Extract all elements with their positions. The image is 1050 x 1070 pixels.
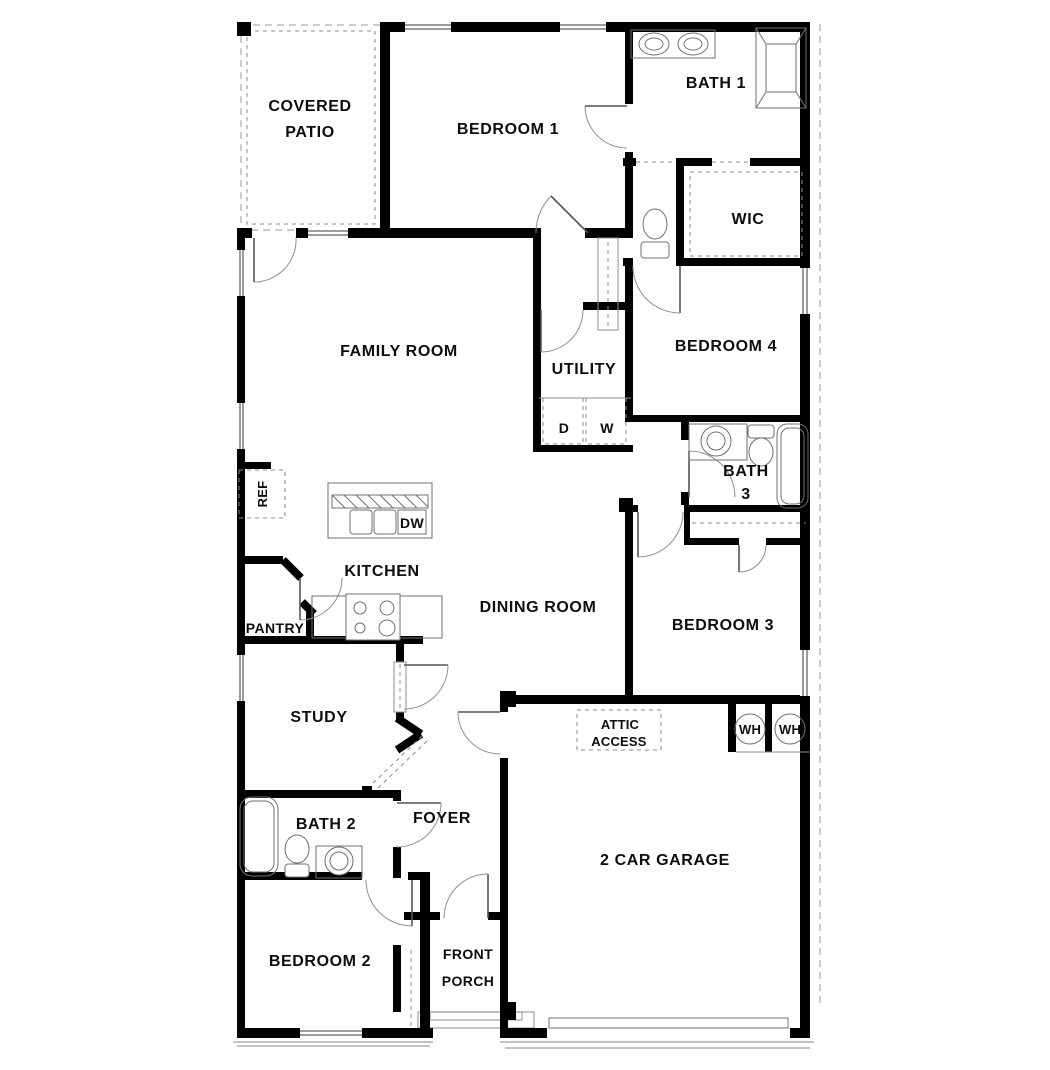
garage-door-to-foyer bbox=[458, 712, 500, 754]
room-label-utility: UTILITY bbox=[552, 361, 617, 378]
room-label-covered-patio-line1: COVERED bbox=[268, 98, 351, 115]
patio-door bbox=[254, 238, 296, 282]
window-bedroom1-top-right bbox=[560, 22, 606, 32]
room-label-bedroom1: BEDROOM 1 bbox=[457, 121, 559, 138]
study-cased-opening bbox=[394, 662, 406, 712]
label-water-heater-1: WH bbox=[739, 722, 761, 737]
bedroom3-door bbox=[638, 512, 683, 557]
room-label-garage: 2 CAR GARAGE bbox=[600, 852, 730, 869]
room-label-foyer: FOYER bbox=[413, 810, 471, 827]
room-label-bath3-line1: BATH bbox=[723, 463, 769, 480]
bath3-toilet-icon bbox=[748, 425, 774, 466]
garage-overhead-door bbox=[549, 1018, 788, 1028]
label-washer: W bbox=[600, 420, 614, 436]
bath1-shower bbox=[756, 28, 806, 108]
room-label-bath1: BATH 1 bbox=[686, 75, 746, 92]
room-labels: COVERED PATIO BEDROOM 1 BATH 1 WIC FAMIL… bbox=[246, 75, 777, 989]
room-label-pantry: PANTRY bbox=[246, 620, 305, 636]
window-study-left bbox=[237, 655, 245, 701]
room-label-dining: DINING ROOM bbox=[480, 599, 597, 616]
appliance-labels: REF DW D W WH WH bbox=[255, 420, 801, 737]
windows bbox=[237, 22, 810, 1038]
bath1-vanity bbox=[631, 30, 715, 58]
label-dishwasher: DW bbox=[400, 515, 425, 531]
room-label-family-room: FAMILY ROOM bbox=[340, 343, 458, 360]
room-label-bedroom2: BEDROOM 2 bbox=[269, 953, 371, 970]
window-bedroom2-bottom bbox=[300, 1028, 362, 1038]
room-label-bedroom3: BEDROOM 3 bbox=[672, 617, 774, 634]
front-entry-door bbox=[444, 874, 488, 918]
label-refrigerator: REF bbox=[255, 481, 270, 508]
walls-layer bbox=[237, 22, 810, 1038]
bedroom1-door bbox=[536, 196, 588, 233]
room-label-bath2: BATH 2 bbox=[296, 816, 356, 833]
window-family-room-top bbox=[308, 228, 348, 238]
window-bedroom1-top-left bbox=[405, 22, 451, 32]
bath3-vanity bbox=[689, 424, 747, 460]
label-attic-access-line1: ATTIC bbox=[601, 717, 640, 732]
room-label-covered-patio-line2: PATIO bbox=[285, 124, 335, 141]
kitchen-counter bbox=[312, 594, 442, 640]
window-family-room-left-2 bbox=[237, 403, 245, 449]
room-label-study: STUDY bbox=[290, 709, 347, 726]
floor-plan-svg: COVERED PATIO BEDROOM 1 BATH 1 WIC FAMIL… bbox=[0, 0, 1050, 1070]
label-dryer: D bbox=[559, 420, 570, 436]
floor-plan-canvas: COVERED PATIO BEDROOM 1 BATH 1 WIC FAMIL… bbox=[0, 0, 1050, 1070]
room-label-front-porch-line1: FRONT bbox=[443, 946, 493, 962]
room-label-kitchen: KITCHEN bbox=[344, 563, 419, 580]
bath1-door bbox=[585, 106, 627, 148]
room-label-bath3-line2: 3 bbox=[741, 486, 751, 503]
study-door bbox=[404, 665, 448, 709]
room-label-bedroom4: BEDROOM 4 bbox=[675, 338, 777, 355]
bath1-toilet-icon bbox=[641, 209, 669, 258]
room-label-front-porch-line2: PORCH bbox=[442, 973, 495, 989]
hall-cased-opening bbox=[598, 238, 618, 330]
window-bedroom3-right bbox=[800, 650, 810, 696]
utility-washer-dryer bbox=[539, 398, 631, 444]
room-label-wic: WIC bbox=[732, 211, 765, 228]
bedroom4-door bbox=[633, 266, 680, 313]
bedroom3-closet-door bbox=[739, 545, 766, 572]
window-family-room-left-1 bbox=[237, 250, 245, 296]
utility-door bbox=[541, 310, 583, 352]
label-attic-access-line2: ACCESS bbox=[591, 734, 647, 749]
bath2-toilet-icon bbox=[285, 835, 309, 877]
label-water-heater-2: WH bbox=[779, 722, 801, 737]
window-bedroom4-right bbox=[800, 268, 810, 314]
bath2-tub bbox=[240, 797, 278, 876]
